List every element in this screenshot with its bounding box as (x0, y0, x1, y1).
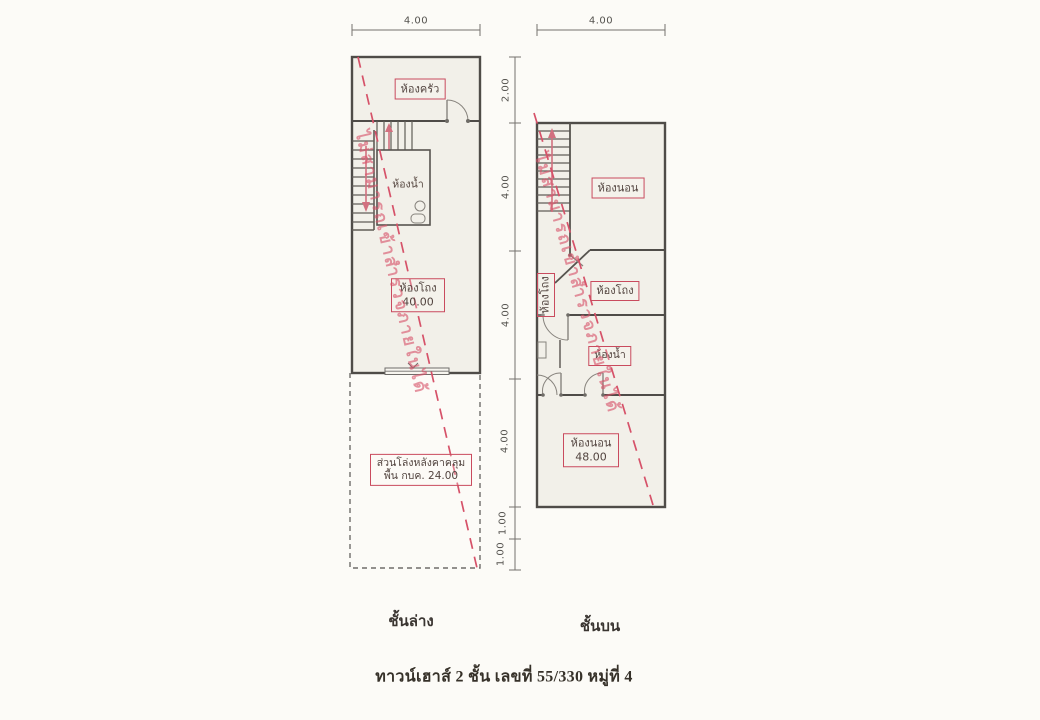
dim-vertical-4: 4.00 (500, 429, 511, 453)
dim-vertical-2: 4.00 (501, 175, 512, 199)
dim-vertical-6: 1.00 (496, 542, 507, 566)
room-label-kitchen: ห้องครัว (395, 79, 446, 100)
dim-vertical-1: 2.00 (501, 78, 512, 102)
page-title: ทาวน์เฮาส์ 2 ชั้น เลขที่ 55/330 หมู่ที่ … (375, 665, 632, 690)
caption-ground-floor: ชั้นล่าง (388, 609, 433, 633)
room-label-hall-vertical: ห้องโถง (537, 273, 555, 317)
dim-vertical-3: 4.00 (501, 303, 512, 327)
room-label-ground-bathroom: ห้องน้ำ (392, 178, 423, 191)
dim-vertical-5: 1.00 (498, 511, 509, 535)
room-label-bedroom-front: ห้องนอน (592, 178, 645, 199)
plan-linework (0, 0, 1040, 720)
caption-upper-floor: ชั้นบน (580, 614, 620, 638)
dim-upper-width: 4.00 (589, 16, 613, 27)
dim-ground-width: 4.00 (404, 16, 428, 27)
room-label-open-area: ส่วนโล่งหลังคาคลุม พื้น กบค. 24.00 (370, 454, 472, 486)
room-label-upper-hall: ห้องโถง (590, 281, 639, 301)
floor-plan-sheet: 4.00 4.00 2.00 4.00 4.00 4.00 1.00 1.00 … (0, 0, 1040, 720)
room-label-bedroom-back: ห้องนอน 48.00 (563, 433, 619, 467)
